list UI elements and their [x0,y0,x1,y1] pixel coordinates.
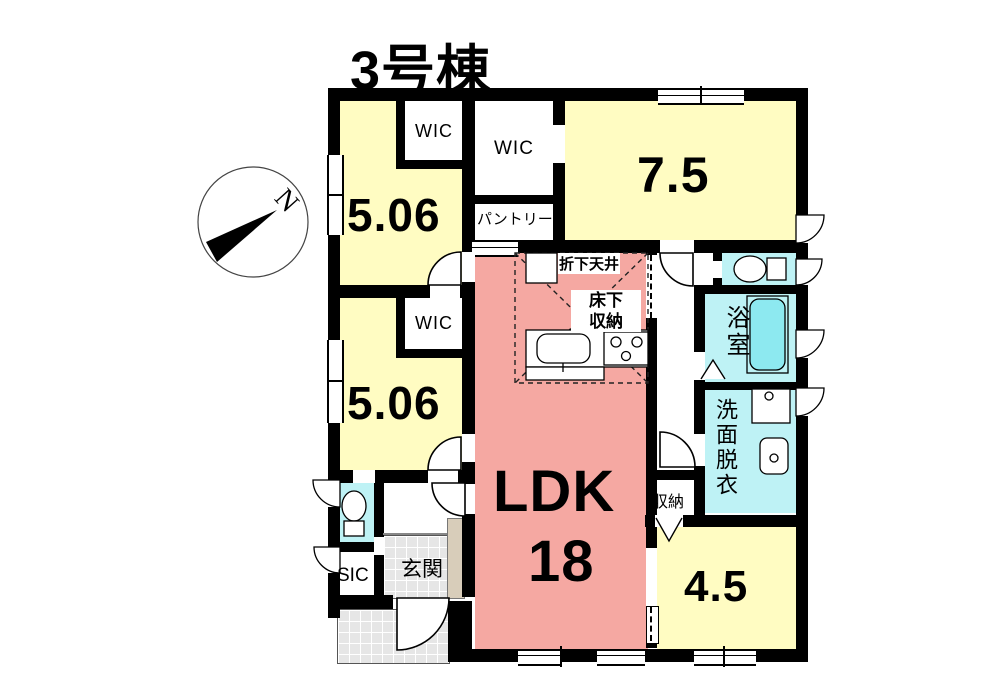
door-gap-toilet-top [713,261,722,278]
label-underfloor-line1: 床下 [589,291,623,310]
window-room45-south [694,649,756,666]
label-wic-top-mid: WIC [494,138,534,160]
room-toilet-top [722,253,796,285]
room-toilet-bottom [338,478,374,542]
door-gap-bedroom1 [430,285,460,298]
label-bedroom-mid-left: 5.06 [347,376,441,430]
porch-tile-floor [337,609,450,664]
label-bath: 浴室 [718,305,753,359]
window-gap-bath [796,330,808,358]
wall-wic3-left [396,298,405,351]
floor-plan-canvas: 3号棟 [0,0,1000,700]
wall-bath-bottom [694,382,796,390]
window-bedroom75 [658,88,744,105]
label-ldk-size: 18 [528,528,595,595]
label-bedroom-bottom-right: 4.5 [684,562,748,612]
wall-wic1-bottom [396,160,462,169]
compass-north-label: N [267,183,304,219]
wall-toilet-top-bottom [694,285,796,294]
window-ldk-south-1 [518,649,562,666]
label-bedroom-top-left: 5.06 [347,188,441,242]
window-bedroom2 [327,340,344,423]
label-pantry: パントリー [477,208,553,229]
label-washroom: 洗面脱衣 [709,398,741,498]
entrance-threshold-line [383,533,447,535]
door-gap-bedroom1-side [462,252,475,282]
compass-needle-icon [206,210,277,262]
label-wic-mid-left: WIC [415,313,453,334]
door-gap-closet-45 [655,515,683,527]
label-underfloor-storage: 床下 収納 [571,290,641,332]
sliding-door-ldk-45-opening [646,548,657,606]
wall-storage-right [694,478,705,515]
wall-wic2-bottom [475,195,553,204]
label-underfloor-line2: 収納 [589,312,623,331]
window-gap-bedroom75-east [796,215,808,243]
label-wic-top-left: WIC [415,121,453,142]
label-bedroom-top-right: 7.5 [637,146,710,204]
wall-sic-bottom [328,595,393,609]
label-sic: SIC [337,565,369,587]
label-entrance: 玄関 [401,553,443,583]
wall-wic3-bottom [396,349,462,358]
wall-porch-right [448,601,472,662]
wall-wic1-left [396,100,405,162]
sliding-door-ldk-45-leaf [646,606,659,644]
label-ldk: LDK [493,458,615,525]
window-gap-toilet-top [796,259,808,285]
door-gap-corridor-ldk [462,484,475,514]
window-gap-washroom [796,388,808,416]
window-kitchen [472,240,518,257]
window-ldk-south-2 [597,649,645,666]
door-gap-bedroom75 [660,240,694,253]
door-gap-sic [374,537,384,555]
door-gap-bedroom2-side [462,434,475,462]
wall-right [796,88,808,662]
window-bedroom1 [327,155,344,235]
label-dropped-ceiling: 折下天井 [558,253,620,274]
door-gap-bath [694,352,705,380]
room-hallway [657,253,694,470]
label-storage: 収納 [652,488,684,512]
door-gap-toilet-bottom [353,470,375,483]
window-gap-toilet-bottom [328,480,340,507]
door-gap-wic2 [553,125,565,163]
door-gap-bedroom2 [428,470,458,483]
sliding-door-kitchen-hall [646,255,657,318]
door-gap-washroom [694,434,705,466]
wall-wic2-right [553,88,565,253]
